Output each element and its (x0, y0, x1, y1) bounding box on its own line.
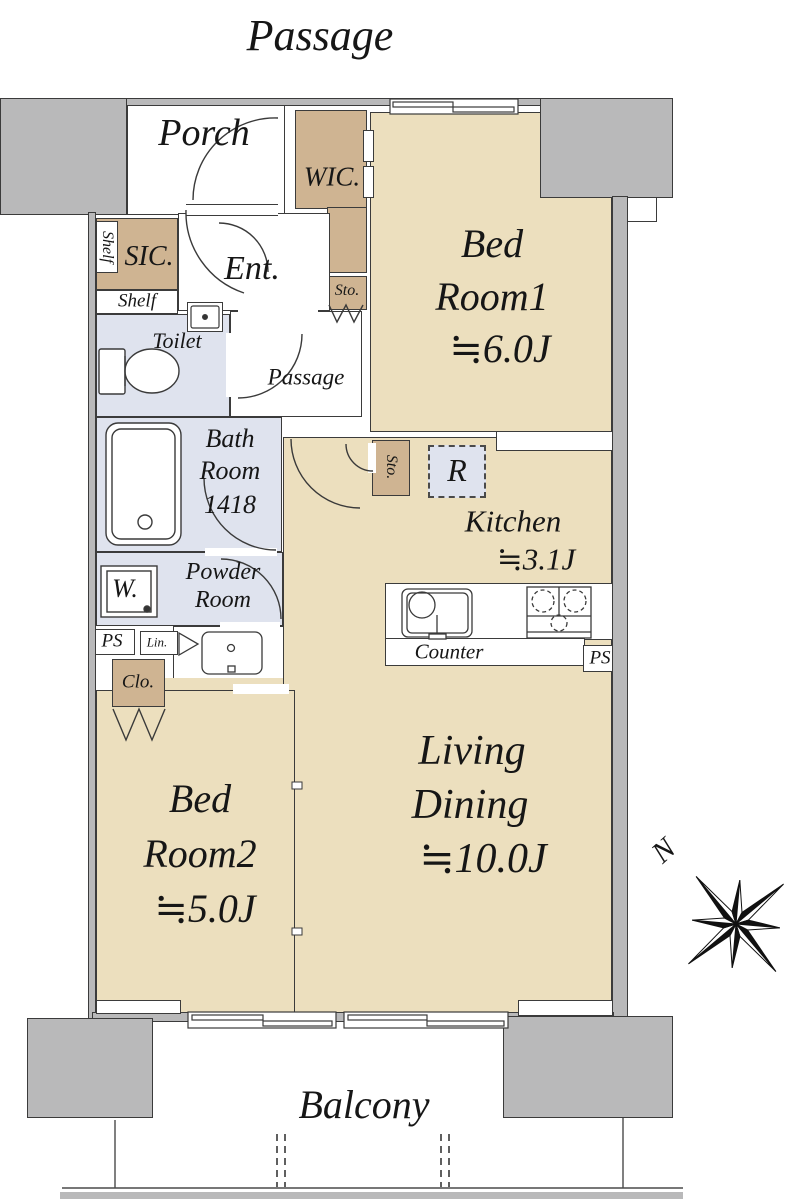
wall-top-left-block (0, 98, 127, 215)
kitchen-bedroom1-band (496, 431, 613, 451)
living-area-label: ≒10.0J (419, 838, 546, 880)
compass-north-label: N (647, 833, 682, 869)
wall-bottom-right-block (503, 1016, 673, 1118)
balcony-lines (62, 1118, 683, 1188)
bedroom2-label-1: Bed (169, 779, 231, 819)
floor-plan: Passage Porch WIC. Bed Room1 ≒6.0J Shelf… (0, 0, 796, 1200)
storage-kitchen-label: Sto. (383, 455, 399, 479)
wall-top-right-block (540, 98, 673, 198)
refrigerator-label: R (447, 454, 467, 486)
door-gap-bath (205, 548, 277, 556)
passage-inner-label: Passage (268, 366, 345, 389)
bedroom2-area-label: ≒5.0J (154, 889, 255, 929)
counter-label: Counter (415, 642, 484, 663)
powder-label-2: Room (195, 588, 251, 612)
wall-bottom-left-block (27, 1018, 153, 1118)
bathroom-size-label: 1418 (204, 492, 256, 518)
room-wic (295, 110, 367, 209)
storage-entrance-label: Sto. (335, 283, 359, 299)
room-vanity (173, 626, 285, 682)
toilet-label: Toilet (152, 330, 201, 352)
balcony-divider-icon (277, 1134, 449, 1187)
ps-left-label: PS (101, 632, 122, 651)
room-living-dining (283, 437, 612, 1014)
kitchen-area-label: ≒3.1J (497, 544, 575, 575)
bedroom2-label-2: Room2 (143, 834, 256, 874)
right-wall-notch (627, 197, 657, 222)
ps-right-label: PS (589, 649, 610, 668)
door-gap-toilet (226, 333, 234, 397)
bedroom2-notch (96, 1000, 181, 1014)
living-label-1: Living (418, 730, 525, 772)
door-gap-ent-passage (238, 306, 318, 315)
kitchen-label: Kitchen (465, 506, 561, 537)
front-door-threshold (186, 204, 278, 216)
door-gap-powder (220, 622, 280, 630)
wall-right (612, 196, 628, 1018)
bathroom-label-1: Bath (205, 426, 254, 452)
wic-slide-mark-1 (363, 130, 374, 162)
porch-label: Porch (158, 114, 249, 152)
balcony-label: Balcony (298, 1085, 429, 1125)
shelf-label: Shelf (118, 292, 156, 311)
washer-label: W. (112, 576, 138, 602)
entrance-label: Ent. (224, 252, 280, 286)
living-label-2: Dining (412, 784, 529, 826)
powder-label-1: Powder (186, 560, 261, 584)
wic-label: WIC. (304, 164, 360, 191)
bedroom1-area-label: ≒6.0J (449, 329, 550, 369)
wall-left (88, 212, 96, 1020)
linen-label: Lin. (147, 636, 168, 649)
wic-slide-mark-2 (363, 166, 374, 198)
corridor-label: Passage (247, 14, 394, 58)
door-gap-storage-kitchen (368, 443, 376, 473)
balcony-edge-strip (60, 1192, 683, 1199)
room-wic-lower (327, 207, 367, 273)
shelf-vertical-label: Shelf (99, 231, 115, 263)
sic-label: SIC. (125, 243, 174, 271)
bottom-wall-notch (518, 1000, 613, 1016)
bathroom-label-2: Room (200, 458, 261, 484)
kitchen-counter (385, 583, 613, 640)
door-gap-bedroom2 (233, 684, 289, 694)
bedroom1-label-1: Bed (461, 224, 523, 264)
closet-label: Clo. (122, 673, 154, 692)
bedroom1-label-2: Room1 (435, 277, 548, 317)
